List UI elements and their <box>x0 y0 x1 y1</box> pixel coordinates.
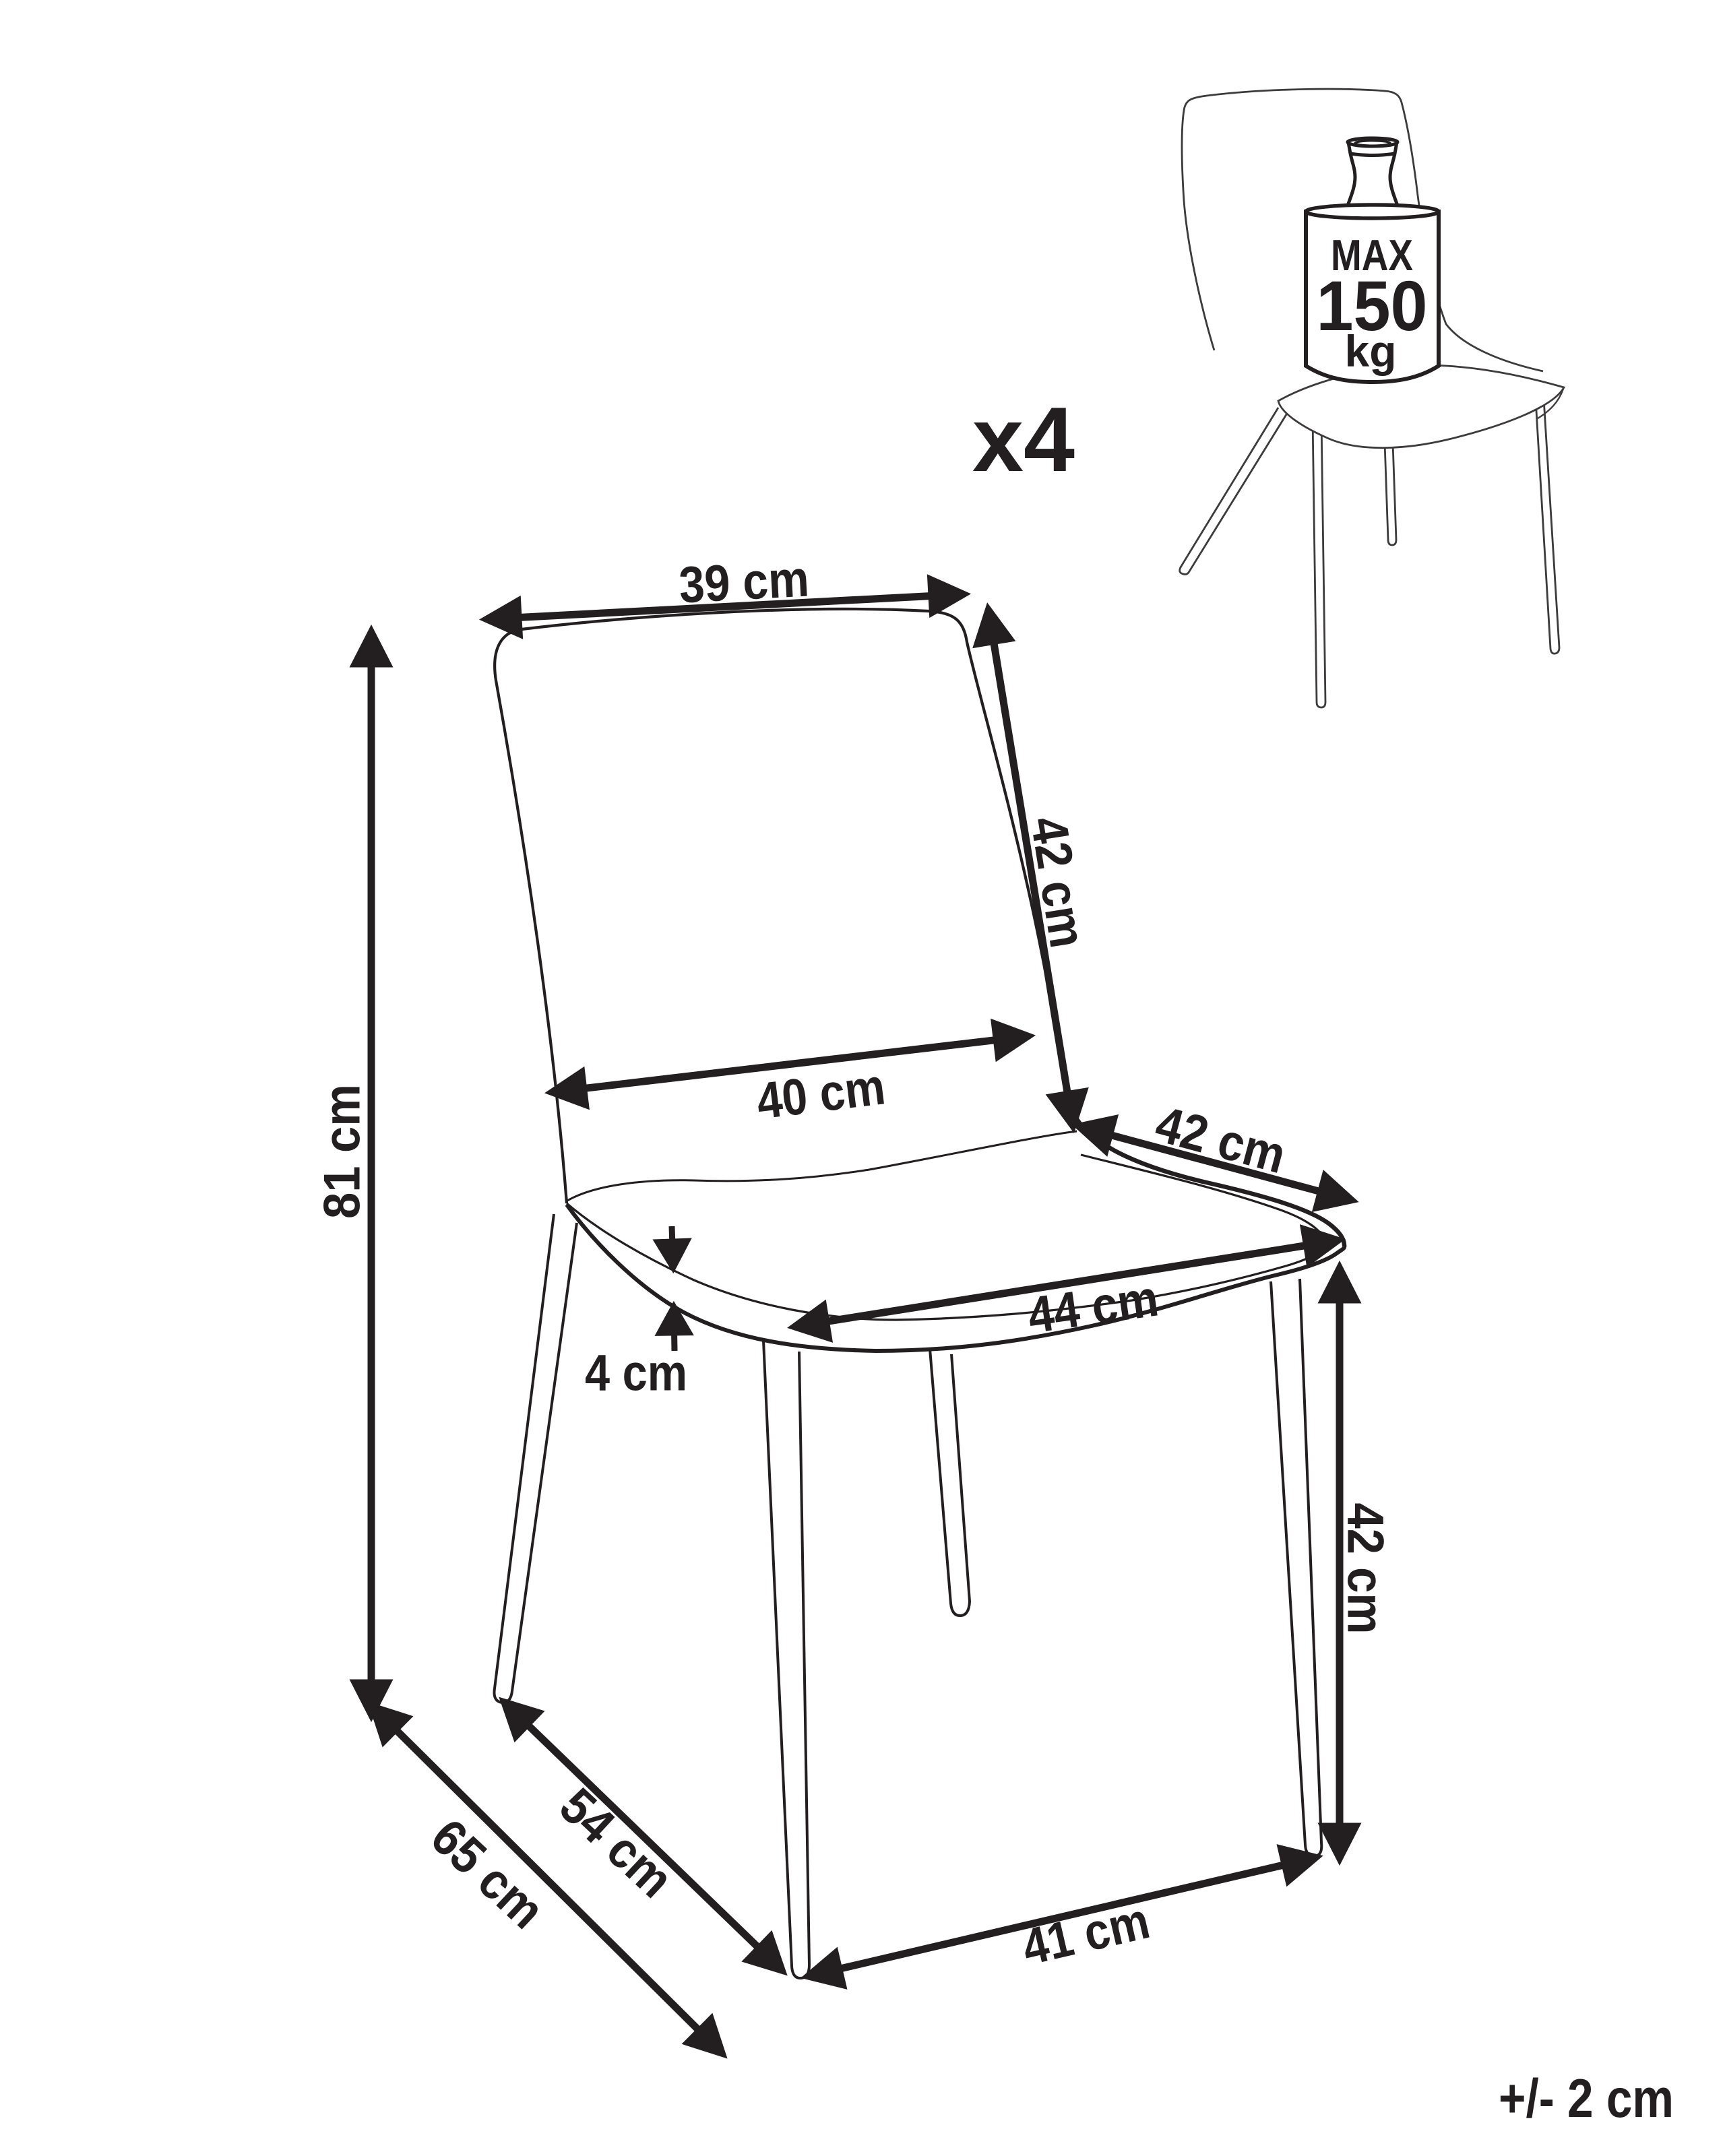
svg-text:4 cm: 4 cm <box>585 1345 687 1402</box>
svg-text:39 cm: 39 cm <box>678 550 811 614</box>
svg-text:42 cm: 42 cm <box>1337 1503 1394 1635</box>
svg-text:kg: kg <box>1345 326 1397 376</box>
svg-text:+/- 2 cm: +/- 2 cm <box>1499 2068 1674 2129</box>
svg-text:81 cm: 81 cm <box>314 1084 371 1219</box>
svg-text:x4: x4 <box>972 388 1075 490</box>
